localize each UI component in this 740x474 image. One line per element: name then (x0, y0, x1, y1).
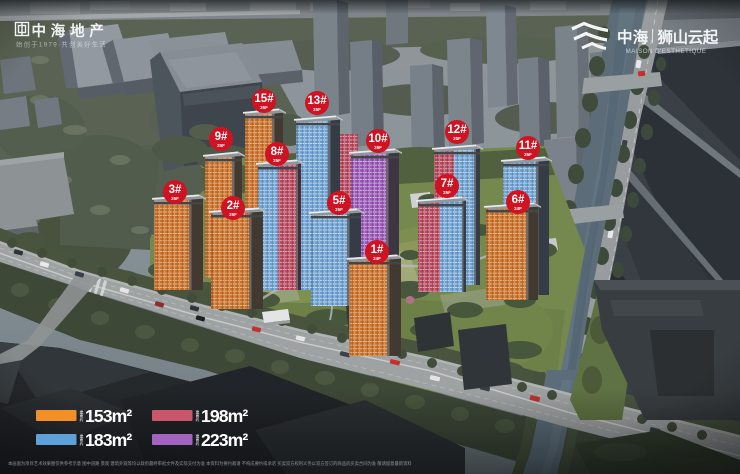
svg-text:约: 约 (196, 441, 200, 446)
svg-text:中海: 中海 (617, 28, 649, 47)
svg-text:约: 约 (196, 417, 200, 422)
svg-text:198m²: 198m² (201, 406, 248, 426)
svg-text:本画面为项目艺术效果图仅供参考示意 图中道路 景观 建筑外观: 本画面为项目艺术效果图仅供参考示意 图中道路 景观 建筑外观等均以政府最终审批文… (8, 460, 412, 467)
svg-text:狮山云起: 狮山云起 (657, 28, 719, 47)
svg-text:223m²: 223m² (201, 430, 248, 450)
svg-text:约: 约 (80, 417, 84, 422)
svg-text:中海地产: 中海地产 (32, 22, 109, 40)
svg-text:MAISON D'ESTHETIQUE: MAISON D'ESTHETIQUE (626, 48, 707, 55)
svg-text:183m²: 183m² (85, 430, 132, 450)
svg-text:约: 约 (80, 441, 84, 446)
svg-text:始创于1979·共创美好生活: 始创于1979·共创美好生活 (16, 40, 107, 49)
svg-text:153m²: 153m² (85, 406, 132, 426)
